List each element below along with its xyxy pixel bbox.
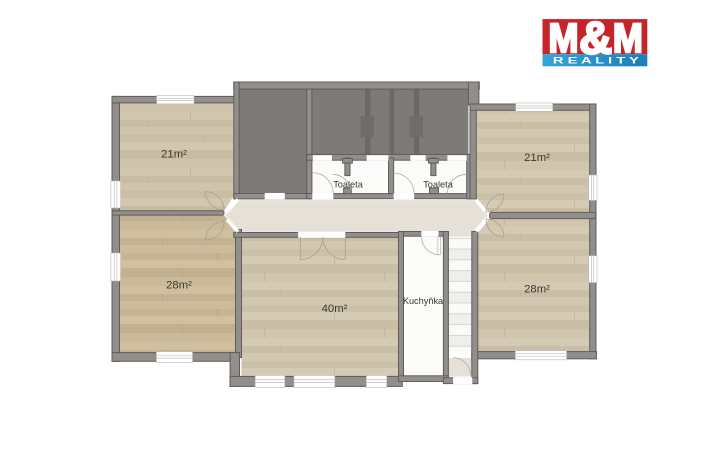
svg-text:28m²: 28m² bbox=[166, 280, 192, 292]
svg-text:40m²: 40m² bbox=[322, 303, 348, 315]
svg-text:Toaleta: Toaleta bbox=[423, 179, 454, 189]
svg-text:M: M bbox=[549, 15, 579, 61]
svg-text:M: M bbox=[613, 15, 643, 61]
svg-text:21m²: 21m² bbox=[161, 149, 187, 161]
svg-text:28m²: 28m² bbox=[524, 284, 550, 296]
svg-text:R E A L I T Y: R E A L I T Y bbox=[553, 56, 639, 66]
svg-text:Kuchyňka: Kuchyňka bbox=[403, 296, 444, 306]
svg-text:21m²: 21m² bbox=[524, 152, 550, 164]
svg-text:Toaleta: Toaleta bbox=[333, 179, 364, 189]
